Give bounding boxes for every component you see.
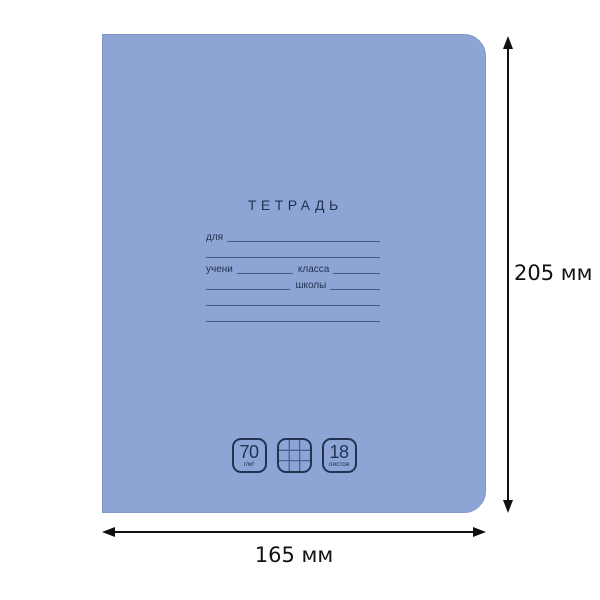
- write-in-line: [330, 289, 380, 290]
- notebook-title: ТЕТРАДЬ: [206, 197, 380, 213]
- notebook-cover: ТЕТРАДЬ для учени класса школы 70: [102, 34, 486, 513]
- width-dimension-label: 165 мм: [102, 543, 486, 567]
- sheet-count-unit: листов: [329, 461, 350, 468]
- write-in-line: [333, 273, 380, 274]
- form-row-student-class: учени класса: [206, 259, 380, 275]
- form-row-blank-1: [206, 243, 380, 259]
- form-row-blank-2: [206, 291, 380, 307]
- spec-badges: 70 г/м² 18 листов: [103, 438, 485, 473]
- for-label: для: [206, 232, 227, 243]
- write-in-line: [206, 289, 290, 290]
- write-in-line: [206, 321, 380, 322]
- form-row-blank-3: [206, 307, 380, 323]
- owner-label: учени: [206, 264, 237, 275]
- square-grid-icon: [277, 438, 312, 473]
- class-label: класса: [293, 264, 333, 275]
- dimension-line-horizontal: [107, 531, 481, 533]
- height-dimension-arrow: [503, 36, 513, 513]
- paper-density-value: 70: [239, 443, 258, 461]
- form-row-school: школы: [206, 275, 380, 291]
- dimension-line-vertical: [507, 41, 509, 508]
- sheet-count-value: 18: [329, 443, 348, 461]
- write-in-line: [227, 241, 380, 242]
- width-dimension-arrow: [102, 527, 486, 537]
- arrowhead-down-icon: [503, 500, 513, 513]
- arrowhead-right-icon: [473, 527, 486, 537]
- height-dimension-label: 205 мм: [514, 261, 592, 285]
- school-label: школы: [290, 280, 330, 291]
- paper-density-unit: г/м²: [244, 461, 255, 468]
- paper-density-badge: 70 г/м²: [232, 438, 267, 473]
- write-in-line: [206, 305, 380, 306]
- form-row-for: для: [206, 227, 380, 243]
- write-in-line: [206, 257, 380, 258]
- write-in-line: [237, 273, 293, 274]
- sheet-count-badge: 18 листов: [322, 438, 357, 473]
- cover-name-form: ТЕТРАДЬ для учени класса школы: [206, 197, 380, 323]
